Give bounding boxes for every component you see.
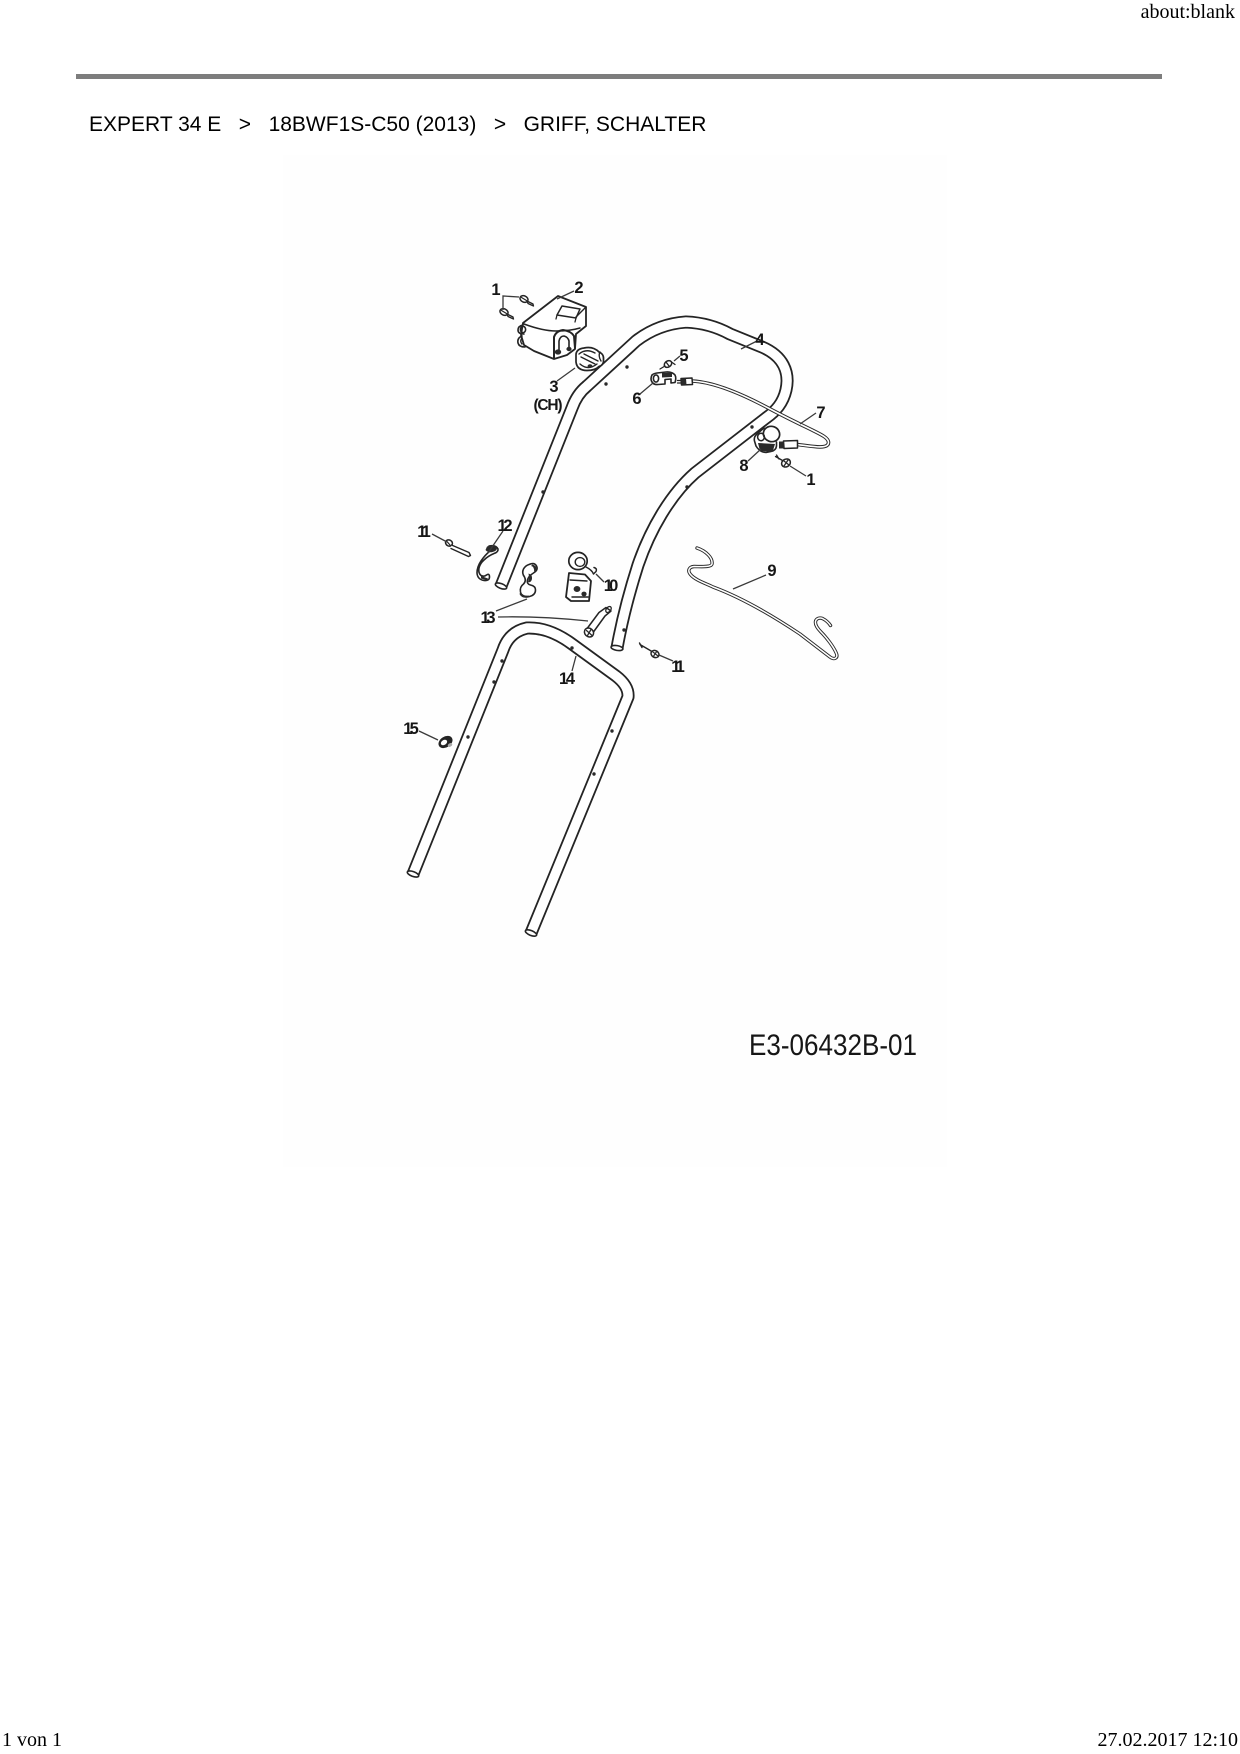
svg-text:8: 8: [739, 457, 748, 475]
svg-text:7: 7: [816, 404, 825, 422]
svg-text:1: 1: [491, 281, 500, 299]
svg-text:4: 4: [755, 331, 765, 349]
svg-text:1: 1: [806, 471, 815, 489]
svg-text:9: 9: [767, 562, 776, 580]
svg-text:5: 5: [679, 347, 688, 365]
svg-text:3: 3: [549, 378, 558, 396]
svg-text:6: 6: [632, 390, 641, 408]
svg-text:2: 2: [574, 279, 583, 297]
svg-text:13: 13: [481, 609, 496, 627]
svg-text:11: 11: [671, 658, 685, 676]
svg-text:12: 12: [498, 517, 513, 535]
svg-text:15: 15: [403, 720, 419, 738]
svg-text:14: 14: [559, 670, 576, 688]
svg-text:(CH): (CH): [534, 397, 563, 414]
svg-text:E3-06432B-01: E3-06432B-01: [749, 1029, 917, 1062]
svg-text:11: 11: [417, 523, 431, 541]
svg-text:10: 10: [604, 577, 619, 595]
